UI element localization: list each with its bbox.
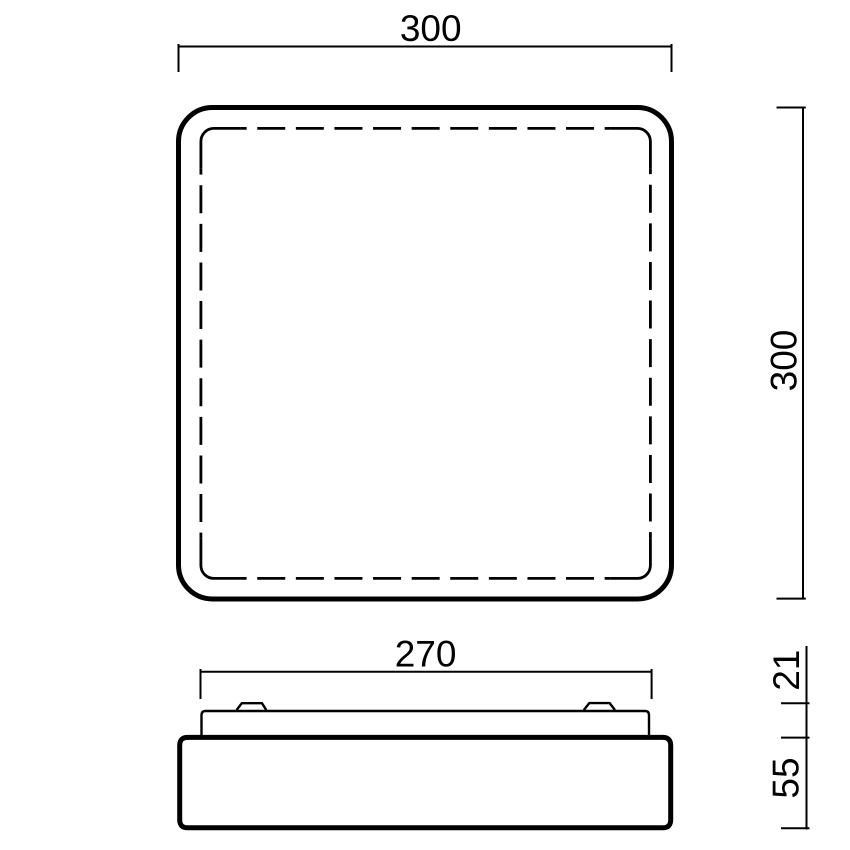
svg-text:270: 270 bbox=[395, 634, 457, 675]
svg-text:300: 300 bbox=[764, 330, 805, 392]
svg-text:300: 300 bbox=[400, 8, 462, 49]
svg-text:55: 55 bbox=[765, 757, 806, 798]
svg-text:21: 21 bbox=[766, 650, 807, 691]
